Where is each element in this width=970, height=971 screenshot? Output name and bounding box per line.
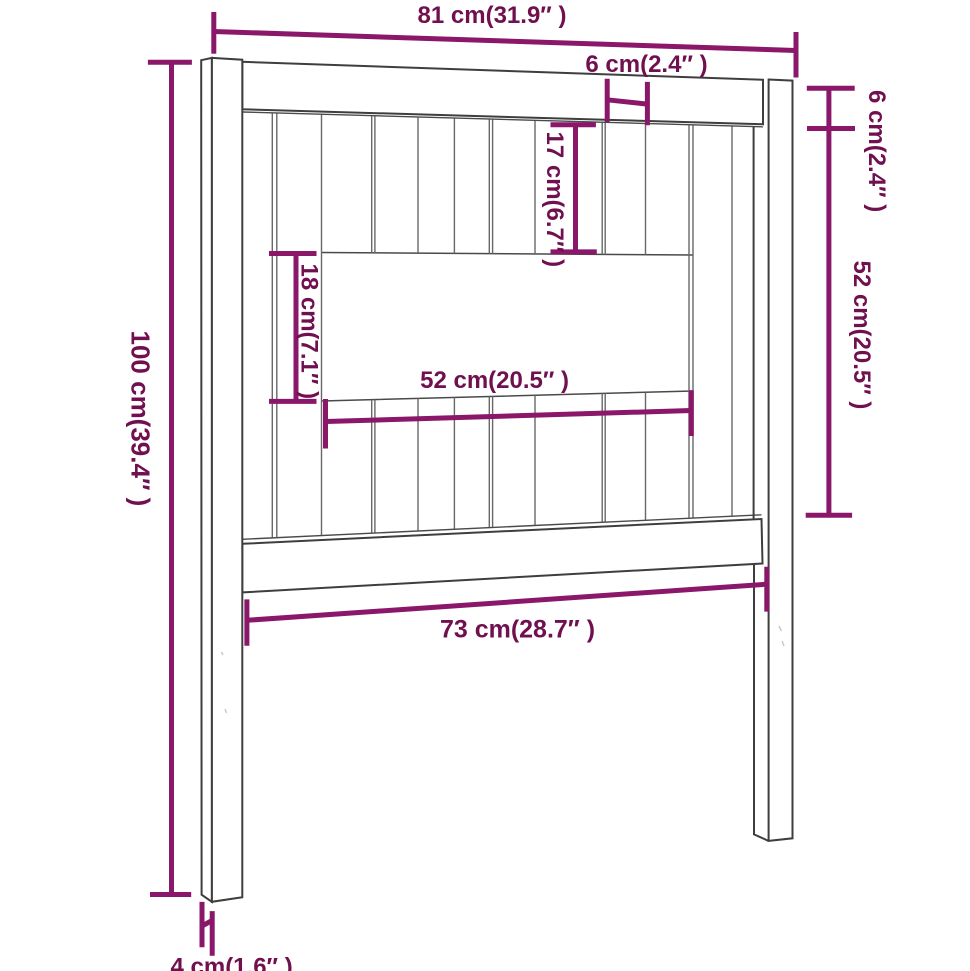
svg-text:81 cm(31.9″ ): 81 cm(31.9″ ) xyxy=(418,2,567,29)
svg-text:4 cm(1.6″ ): 4 cm(1.6″ ) xyxy=(170,954,292,971)
svg-text:100 cm(39.4″ ): 100 cm(39.4″ ) xyxy=(126,331,156,507)
svg-text:52 cm(20.5″ ): 52 cm(20.5″ ) xyxy=(848,261,875,410)
svg-text:17 cm(6.7″ ): 17 cm(6.7″ ) xyxy=(541,132,568,268)
svg-text:6 cm(2.4″ ): 6 cm(2.4″ ) xyxy=(585,51,707,78)
svg-text:52 cm(20.5″ ): 52 cm(20.5″ ) xyxy=(420,367,569,394)
svg-text:73 cm(28.7″ ): 73 cm(28.7″ ) xyxy=(440,616,595,644)
svg-text:6 cm(2.4″ ): 6 cm(2.4″ ) xyxy=(863,90,890,212)
svg-text:18 cm(7.1″ ): 18 cm(7.1″ ) xyxy=(296,264,323,400)
